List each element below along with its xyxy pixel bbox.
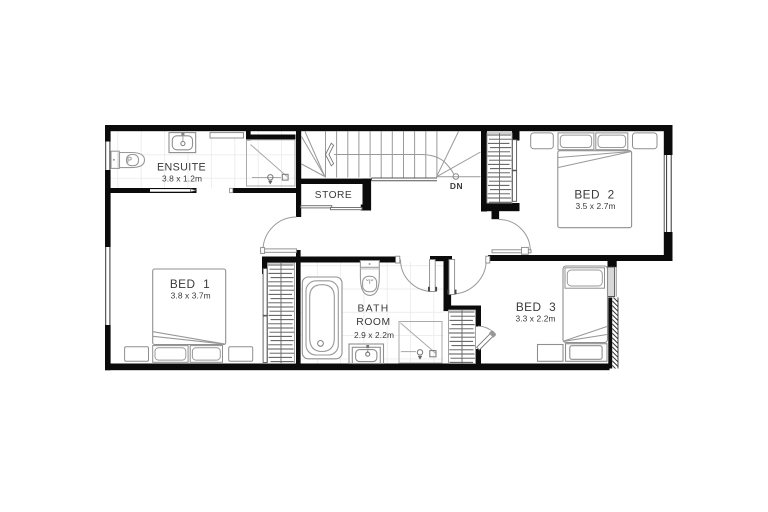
svg-text:ROOM: ROOM xyxy=(356,317,390,328)
svg-text:2.9 x 2.2m: 2.9 x 2.2m xyxy=(354,330,394,340)
svg-text:3.3 x 2.2m: 3.3 x 2.2m xyxy=(515,314,555,324)
svg-text:BED 3: BED 3 xyxy=(516,300,556,314)
svg-text:ENSUITE: ENSUITE xyxy=(157,162,206,174)
svg-text:3.8 x 1.2m: 3.8 x 1.2m xyxy=(162,173,202,183)
svg-text:BATH: BATH xyxy=(358,304,390,315)
svg-text:BED 2: BED 2 xyxy=(574,188,614,202)
svg-text:3.8 x 3.7m: 3.8 x 3.7m xyxy=(171,290,211,300)
svg-text:3.5 x 2.7m: 3.5 x 2.7m xyxy=(575,201,615,211)
svg-text:STORE: STORE xyxy=(315,190,352,201)
svg-text:BED 1: BED 1 xyxy=(170,277,210,291)
svg-text:DN: DN xyxy=(450,181,463,191)
